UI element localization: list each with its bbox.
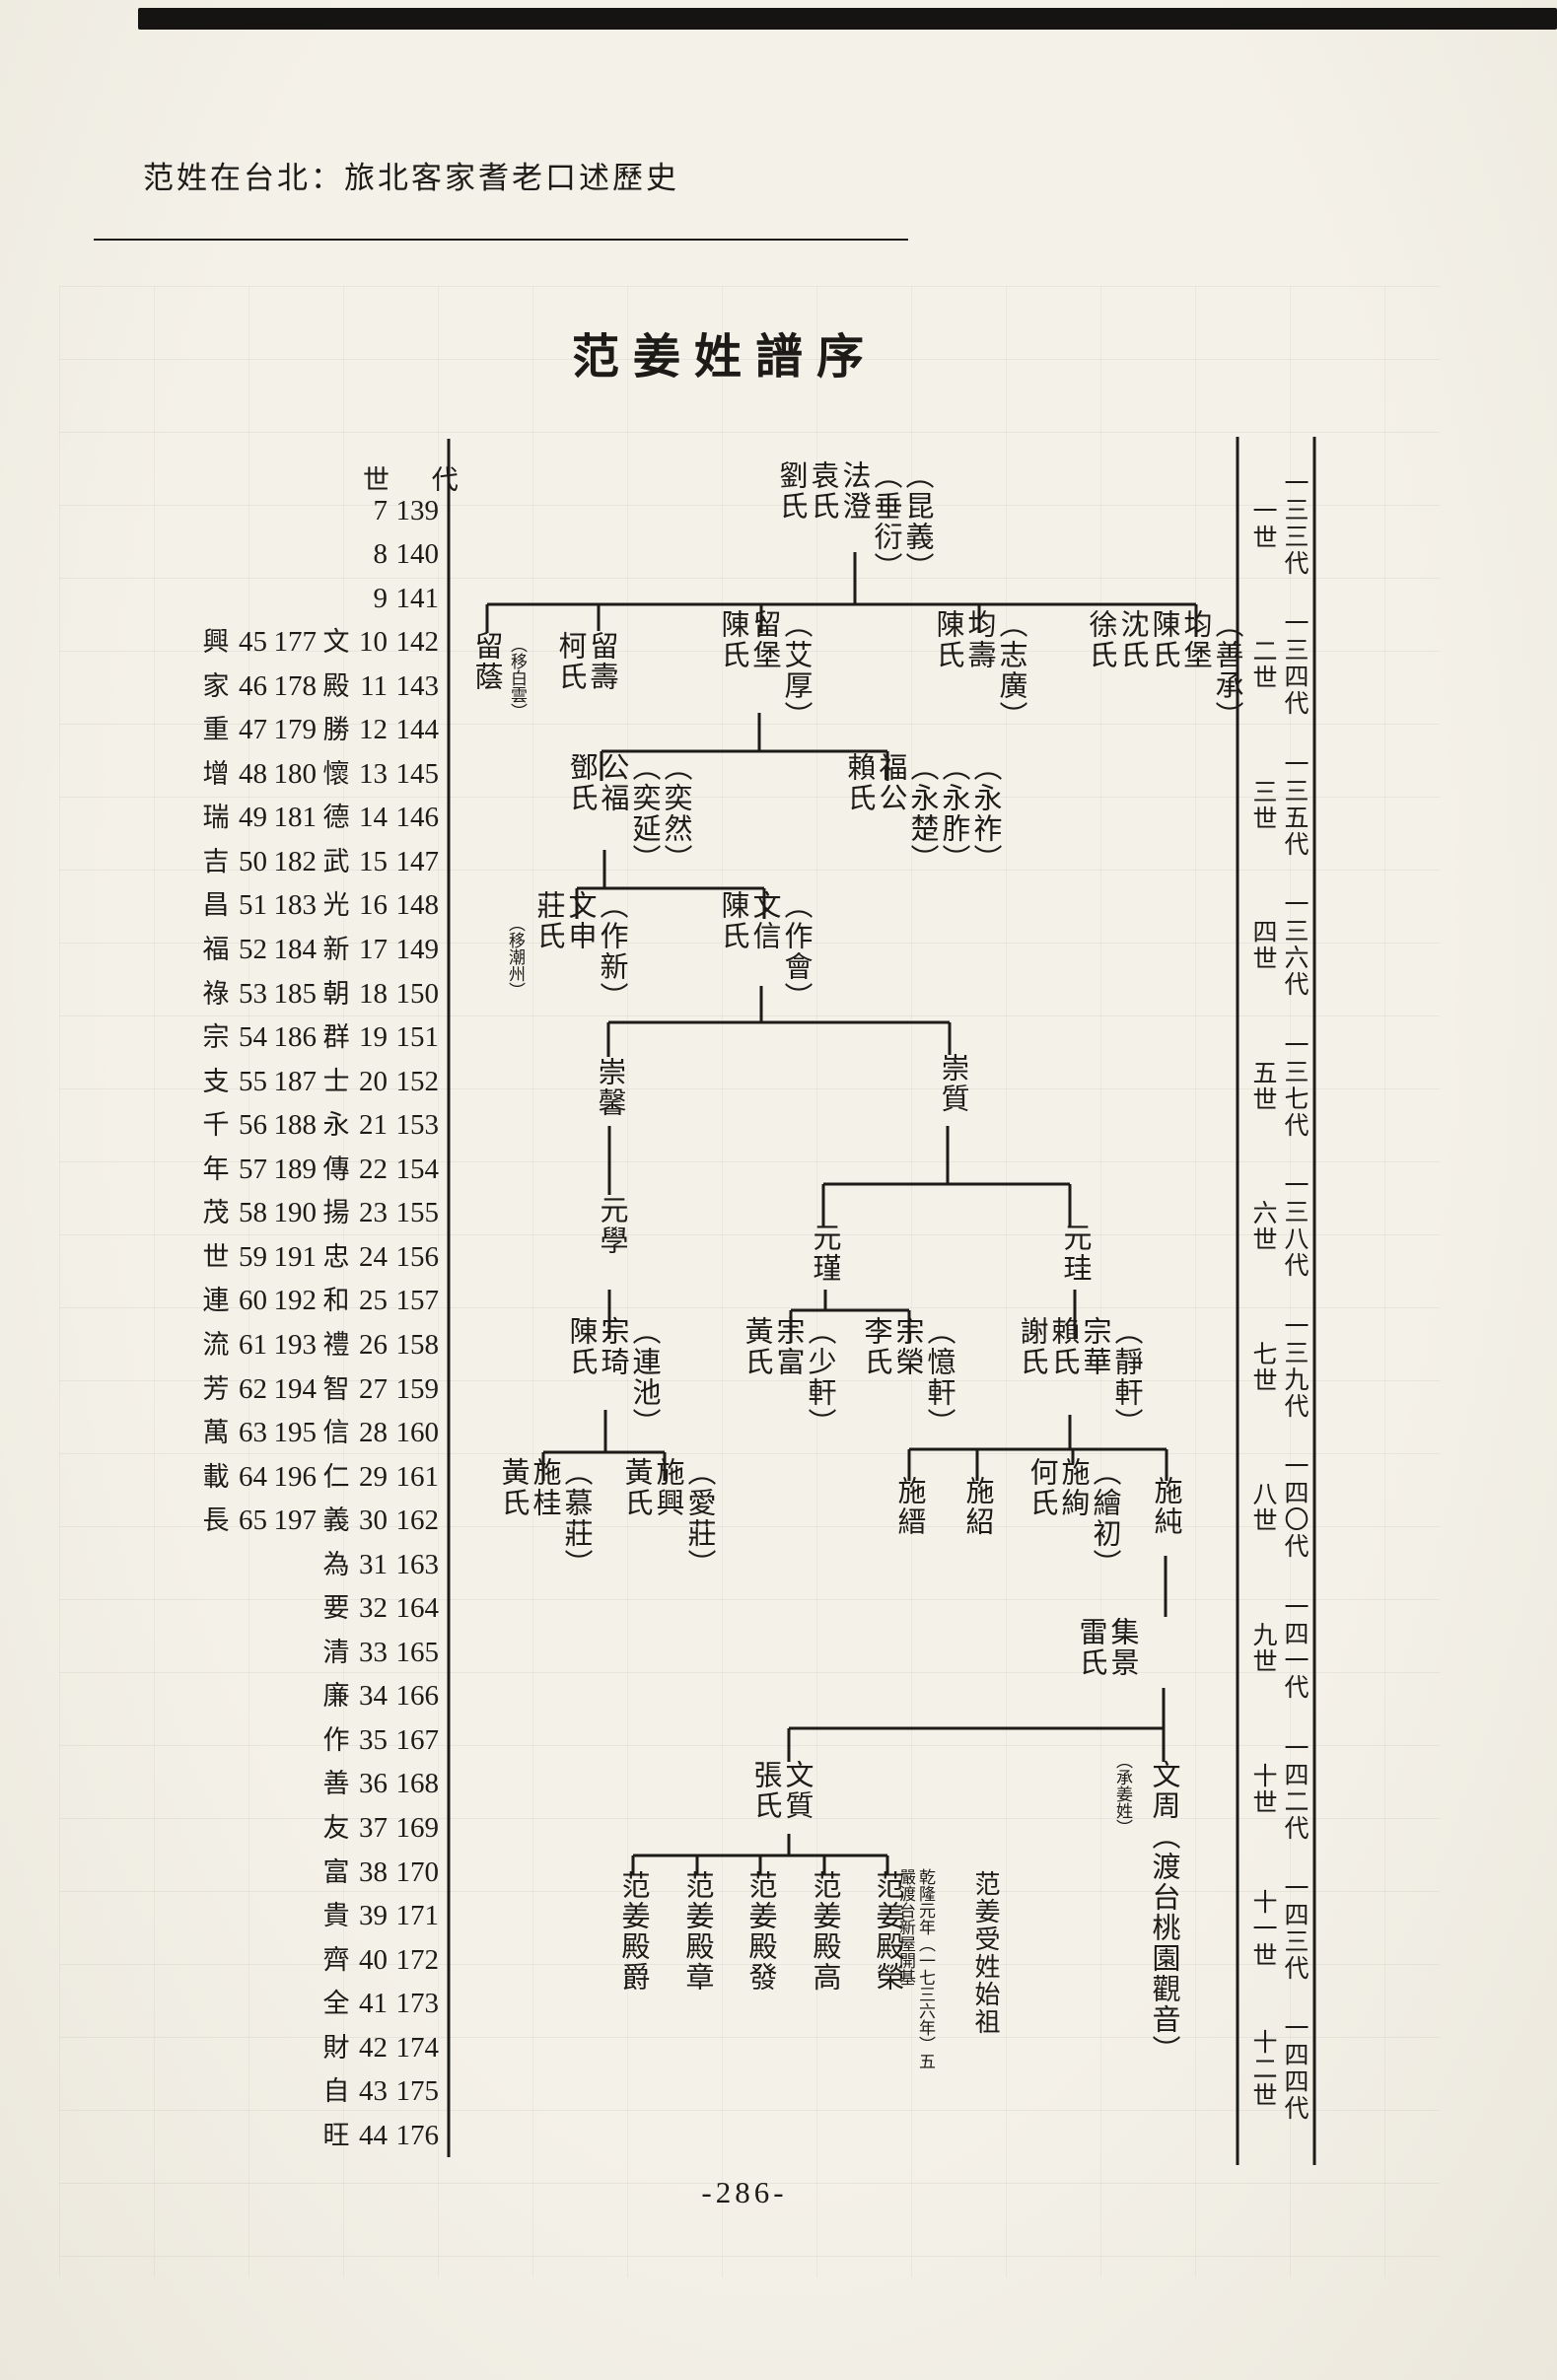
tree-node-gen2-liubao: ︵艾厚︶ 留堡 陳氏	[717, 609, 812, 732]
tree-node-gen6-yuangui: 元珪	[1059, 1223, 1091, 1284]
tree-node-gen11-diangao: 范姜殿高	[809, 1870, 840, 1993]
tree-node-gen3-fugong: ︵永祚︶ ︵永胙︶ ︵永楚︶ 福公 賴氏	[843, 752, 1001, 875]
tree-node-gen6-yuanjin: 元瑾	[809, 1223, 840, 1284]
page-number: -286-	[0, 2175, 1489, 2210]
tree-node-gen11-dianfa: 范姜殿發	[744, 1870, 776, 1993]
tree-node-gen2-liuyin: 留蔭	[470, 631, 502, 692]
tree-node-gen4-wenshen: ︵作新︶ 文申 莊氏	[532, 890, 627, 1013]
tree-node-gen8-shishao: 施紹	[961, 1476, 993, 1537]
tree-node-gen10-wenzhi: 文質 張氏	[749, 1760, 813, 1821]
tree-node-gen8-shichun: 施純	[1150, 1476, 1181, 1537]
tree-node-gen2-note-move: ︵移白雲︶	[507, 636, 527, 720]
tree-node-gen10-wenzhou: 文周︵渡台桃園觀音︶	[1148, 1760, 1179, 2065]
tree-node-gen1-facheng: ︵昆義︶ ︵垂衍︶ 法澄 袁氏 劉氏	[775, 460, 933, 583]
tree-node-gen10-note-adopt: ︵承姜姓︶	[1112, 1752, 1132, 1836]
tree-node-gen4-wenxin: ︵作會︶ 文信 陳氏	[717, 890, 812, 1013]
tree-node-gen8-shixuan: ︵繪初︶ 施絢 何氏	[1026, 1457, 1120, 1579]
tree-node-gen7-zongqi: ︵連池︶ 宗琦 陳氏	[565, 1316, 660, 1438]
tree-node-gen7-zonghua: ︵靜軒︶ 宗華 賴氏 謝氏	[1016, 1316, 1142, 1438]
tree-node-gen6-yuanxue: 元學	[596, 1195, 627, 1256]
tree-node-gen4-note-move: ︵移潮州︶	[505, 915, 525, 999]
tree-node-gen8-shijin: 施縉	[893, 1476, 925, 1537]
tree-node-gen11-dianjue: 范姜殿爵	[617, 1870, 649, 1993]
tree-node-gen8-shixing: ︵愛莊︶ 施興 黃氏	[620, 1457, 715, 1579]
tree-node-gen2-liushou: 留壽 柯氏	[554, 631, 617, 692]
tree-node-gen11-note-date: 乾隆元年︵一七三六年︶五 嚴渡台新屋開基	[895, 1868, 935, 2069]
tree-node-gen11-dianzhang: 范姜殿章	[681, 1870, 713, 1993]
tree-node-gen7-zongrong: ︵憶軒︶ 宗榮 李氏	[860, 1316, 955, 1438]
tree-node-gen7-zongfu: ︵少軒︶ 宗富 黃氏	[741, 1316, 835, 1438]
tree-node-gen5-chongxin: 崇馨	[594, 1057, 625, 1118]
tree-node-gen2-junbao: ︵善承︶ 均堡 陳氏 沈氏 徐氏	[1085, 609, 1242, 732]
tree-node-gen8-shigui: ︵慕莊︶ 施桂 黃氏	[497, 1457, 592, 1579]
tree-node-gen3-gongfu: ︵奕然︶ ︵奕延︶ 公福 鄧氏	[565, 752, 691, 875]
tree-node-gen9-jijing: 集景 雷氏	[1075, 1617, 1138, 1678]
tree-connector-lines	[0, 0, 1557, 2380]
tree-node-gen11-shizu: 范姜受姓始祖	[971, 1870, 1000, 2036]
scanned-book-page: 范姓在台北：旅北客家耆老口述歷史 范姜姓譜序 世 代 713981409141興…	[0, 0, 1557, 2380]
tree-node-gen5-chongzhi: 崇質	[937, 1053, 968, 1114]
tree-node-gen2-junshou: ︵志廣︶ 均壽 陳氏	[932, 609, 1026, 732]
